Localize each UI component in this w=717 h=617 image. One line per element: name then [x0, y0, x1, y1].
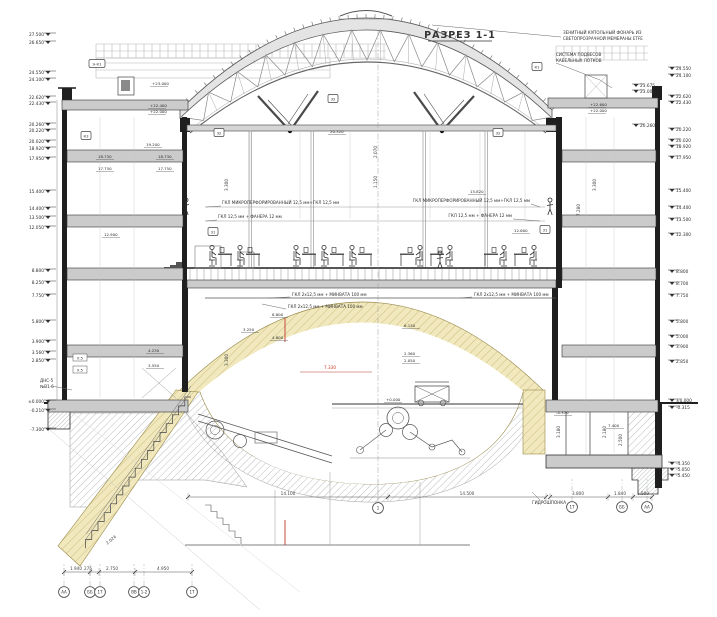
desk [514, 254, 528, 256]
elevation-flag [46, 320, 51, 323]
grid-bubble-label: ББ [87, 590, 93, 595]
elevation-flag [46, 33, 51, 36]
truss-vertical [237, 71, 244, 94]
truss-bottom-chord [190, 62, 546, 133]
person-seated-body [212, 250, 216, 266]
roof-deck-tick [303, 24, 304, 28]
truss-vertical [266, 55, 272, 81]
roof-deck-tick [294, 28, 295, 32]
person-seated-body [446, 250, 450, 266]
note-text-gkl-right-1: ГКЛ МИКРОПЕРФОРИРОВАННЫЙ 12,5 мм+ГКЛ 12,… [413, 198, 530, 203]
monitor [408, 248, 412, 253]
note-text-skylight: ЗЕНИТНЫЙ КУПОЛЬНЫЙ ФОНАРЬ ИЗ [563, 30, 642, 35]
elevation-flag [46, 351, 51, 354]
elevation-flag [670, 399, 675, 402]
person-seated-body [296, 250, 300, 266]
inner-wall [556, 117, 562, 288]
dimension-label: 14.100 [281, 491, 296, 496]
elevation-value: 20.260 [29, 122, 44, 128]
grid-bubble-label: 1Т [570, 505, 576, 510]
elevation-flag [670, 218, 675, 221]
grid-bubble-label: 1-2 [141, 590, 148, 595]
desk [400, 254, 414, 256]
elevation-flag [670, 67, 675, 70]
elevation-value: -7.300 [30, 427, 44, 433]
elevation-flag [670, 406, 675, 409]
floor-slab [67, 215, 183, 227]
elevation-value: 26.650 [29, 40, 44, 46]
interior-level: 3.250 [243, 327, 255, 332]
interior-level: +22.000 [590, 108, 607, 113]
truss-vertical [209, 92, 217, 111]
roof-deck-tick [543, 99, 546, 102]
desk [484, 254, 498, 256]
interior-level: 18.730 [98, 154, 112, 159]
note-leader-gidroshponka [532, 492, 540, 500]
elevation-flag [46, 359, 51, 362]
elevation-value: 24.100 [29, 77, 44, 83]
interior-level: 8.800 [272, 312, 284, 317]
drawing-title: РАЗРЕЗ 1-1 [424, 30, 496, 41]
roof-slab [62, 100, 188, 110]
basement-outer-wall [655, 403, 662, 488]
dimension-label-rotated: 1.150 [373, 176, 378, 188]
elevation-value: 12.050 [29, 225, 44, 231]
elevation-flag [46, 147, 51, 150]
elevation-value: 20.020 [29, 139, 44, 145]
basement-slab [546, 455, 662, 468]
interior-level: 12.900 [104, 232, 118, 237]
interior-level: 18.730 [158, 154, 172, 159]
inner-wall-lower [552, 288, 558, 412]
interior-level: +22.400 [150, 103, 167, 108]
detail-marker-label: 31 [543, 228, 548, 233]
dimension-label: 2.750 [106, 566, 118, 571]
elevation-value: 5.800 [32, 319, 45, 325]
roof-truss [177, 11, 556, 134]
elevation-flag [46, 340, 51, 343]
elevation-flag [46, 140, 51, 143]
truss-deck-band [180, 18, 552, 118]
person-head [238, 245, 242, 249]
elevation-flag [46, 123, 51, 126]
elevation-value: 14.400 [29, 206, 44, 212]
elevation-flag [670, 462, 675, 465]
elevation-flag [46, 216, 51, 219]
elevation-flag [670, 468, 675, 471]
dimension-label: 14.500 [460, 491, 475, 496]
dimension-label-rotated: 3.300 [592, 179, 597, 191]
dimension-label-rotated: 3.180 [556, 426, 561, 438]
roof-deck-tick [204, 83, 207, 86]
elevation-flag [670, 294, 675, 297]
desk [330, 254, 344, 256]
roof-deck-tick [339, 16, 340, 20]
hall-partition [195, 246, 221, 268]
hall-side-steps [164, 262, 182, 269]
elevation-flag [634, 90, 639, 93]
interior-level: 17.750 [158, 166, 172, 171]
desk [218, 254, 232, 256]
note-text-gkl-left-2: ГКЛ 12,5 мм + ФАНЕРА 12 мм [218, 214, 282, 219]
ground-slab [48, 400, 188, 412]
grid-bubble-label: АА [644, 505, 650, 510]
note-leader-gkl-right-1 [531, 204, 540, 207]
hall-floor-slab [187, 280, 556, 288]
roof-deck-tick [534, 90, 537, 93]
detail-marker-label: К1 [534, 65, 540, 70]
elevation-flag [670, 270, 675, 273]
elevation-flag [670, 206, 675, 209]
grid-bubble-label: 1Т [190, 590, 196, 595]
tag-label: У.5 [77, 356, 84, 361]
roof-deck-tick [419, 22, 420, 26]
detail-marker-label: 31 [211, 230, 216, 235]
elevation-flag [46, 269, 51, 272]
person-head [502, 245, 506, 249]
person-head [548, 198, 552, 202]
floor-slab [67, 268, 183, 280]
elevation-flag [670, 156, 675, 159]
detail-marker-label: Э-К1 [92, 62, 102, 67]
interior-level: +22.600 [590, 102, 607, 107]
roof-deck-tick [508, 68, 510, 71]
truss-vertical [463, 55, 466, 81]
interior-level: +0.000 [386, 397, 401, 402]
roof-deck-tick [330, 17, 331, 21]
v-support-left-web [268, 94, 308, 126]
drawing-sheet: 27.50026.65024.55024.10022.62022.43020.2… [0, 0, 717, 617]
elevation-value: 3.900 [32, 339, 45, 345]
truss-vertical [518, 92, 523, 111]
note-leader-gkl-right-2 [513, 219, 540, 221]
elevation-value: 13.500 [29, 215, 44, 221]
tag-label: У.5 [77, 368, 84, 373]
desk [246, 254, 260, 256]
shell-right-leg [523, 390, 545, 454]
people-figures [183, 198, 553, 268]
interior-level: 12.600 [514, 228, 528, 233]
note-text-gidroshponka: ГИДРОШПОНКА [532, 500, 566, 505]
elevation-flag [46, 102, 51, 105]
elevation-flag [670, 128, 675, 131]
dimension-label-rotated: 7.280 [576, 204, 581, 216]
roof-deck-tick [410, 19, 411, 23]
interior-level: 15.820 [470, 189, 484, 194]
elevation-flag [46, 207, 51, 210]
dimension-label: 1.500 [637, 491, 649, 496]
note-text-ceiling-right: ГКЛ 2x12,5 мм + МИНВАТА 100 мм [474, 292, 549, 297]
person-head [418, 245, 422, 249]
roof-deck-tick [499, 62, 501, 65]
detail-marker-label: 32 [496, 131, 501, 136]
roof-deck-tick [401, 17, 402, 21]
elevation-flag [670, 360, 675, 363]
elevation-flag [46, 428, 51, 431]
elevation-flag [46, 281, 51, 284]
floor-slabs [48, 100, 188, 412]
detail-marker-label: К3 [83, 134, 89, 139]
interior-level: 6.130 [404, 323, 416, 328]
note-leader-ceiling-left-2 [262, 304, 286, 309]
grid-bubble-label: ВВ [131, 590, 137, 595]
monitor [522, 248, 526, 253]
dimension-label-rotated: 2.180 [602, 426, 607, 438]
grid-bubble-label: ББ [619, 505, 625, 510]
person-standing-body [547, 202, 553, 215]
elevation-value: 24.550 [29, 70, 44, 76]
note-text-ceiling-left-2: ГКЛ 2x12,5 мм + МИНВАТА 100 мм [288, 304, 363, 309]
monitor [220, 248, 224, 253]
interior-level: 2.050 [404, 358, 416, 363]
elevation-value: 15.400 [29, 189, 44, 195]
note-text-gkl-right-2: ГКЛ 12,5 мм + ФАНЕРА 12 мм [448, 213, 512, 218]
small-tags: У.5У.5 [73, 354, 87, 373]
elevation-flag [670, 233, 675, 236]
interior-level: 7.400 [608, 423, 620, 428]
person-seated-body [324, 250, 328, 266]
person-head [294, 245, 298, 249]
elevation-value: 7.750 [32, 293, 45, 299]
floor-slab [562, 345, 656, 357]
roof-deck-tick [312, 22, 313, 26]
basement-stair [205, 505, 241, 544]
dimension-label-rotated: 2.024 [105, 534, 118, 546]
roof-deck-tick [490, 56, 492, 59]
truss-vertical [436, 42, 438, 70]
rooftop-box-window [121, 80, 130, 91]
roof-deck-tick [321, 19, 322, 23]
elevation-flag [670, 139, 675, 142]
elevation-flag [46, 226, 51, 229]
ceiling-hangers [250, 131, 525, 219]
roof-deck-tick [428, 24, 429, 28]
inner-wall-lower [182, 288, 188, 392]
note-text-dns: ДНС-5 [40, 378, 54, 383]
note-text-cable-trays: КАБЕЛЬНЫХ ЛОТКОВ [556, 58, 602, 63]
person-seated-body [500, 250, 504, 266]
dimension-label: 1.940 [70, 566, 82, 571]
elevation-value: ±0.000 [28, 399, 44, 405]
elevation-flag [670, 320, 675, 323]
outer-wall [62, 100, 67, 403]
truss-web [180, 30, 552, 120]
roof-deck-tick [393, 16, 394, 20]
grid-bubble-label: 1 [377, 506, 380, 511]
dimension-label: 1.840 [614, 491, 626, 496]
elevation-value: 8.250 [32, 280, 45, 286]
roof-deck-tick [231, 62, 233, 65]
interior-level: 20.320 [330, 129, 344, 134]
truss-vertical [294, 42, 298, 70]
roof-deck-tick [481, 50, 483, 53]
dimension-label-rotated: 3.300 [224, 354, 229, 366]
architectural-section-drawing: 27.50026.65024.55024.10022.62022.43020.2… [0, 0, 717, 617]
elevation-flag [670, 74, 675, 77]
raised-floor-pedestals [190, 269, 547, 280]
dimension-label-rotated: 3.300 [224, 179, 229, 191]
elevation-value: 18.920 [29, 146, 44, 152]
roof-deck-tick [267, 40, 269, 44]
elevation-flag [46, 190, 51, 193]
grid-bubble-label: 1Т [98, 590, 104, 595]
roof-deck-tick [195, 90, 198, 93]
interior-level: 3.550 [148, 363, 160, 368]
elevation-value: 22.620 [29, 95, 44, 101]
dimension-label: 275 [84, 566, 92, 571]
monitor [492, 248, 496, 253]
truss-lattice [180, 30, 552, 131]
elevation-flag [670, 145, 675, 148]
roof-deck-tick [285, 31, 287, 35]
interior-level: 4.230 [148, 348, 160, 353]
interior-level: 19.200 [146, 142, 160, 147]
note-text-dns: №В1-6 [40, 384, 54, 389]
interior-level: 17.750 [98, 166, 112, 171]
detail-marker-label: 32 [331, 97, 336, 102]
roof-deck-tick [525, 83, 528, 86]
person-seated-body [352, 250, 356, 266]
desk [302, 254, 316, 256]
note-text-gkl-left-1: ГКЛ МИКРОПЕРФОРИРОВАННЫЙ 12,5 мм+ГКЛ 12,… [222, 200, 339, 205]
roof-deck-tick [517, 75, 520, 78]
dimension-label-rotated: 2.500 [618, 434, 623, 446]
elevation-value: -0.210 [30, 408, 44, 414]
elevation-value: 3.560 [32, 350, 45, 356]
person-head [532, 245, 536, 249]
elevation-value: 20.220 [29, 128, 44, 134]
roof-deck-tick [258, 45, 260, 48]
roof-deck-tick [276, 35, 278, 39]
elevation-flag [634, 84, 639, 87]
person-head [448, 245, 452, 249]
truss-vertical [408, 34, 409, 64]
floor-slab [562, 268, 656, 280]
elevation-flag [670, 189, 675, 192]
person-head [322, 245, 326, 249]
elevation-value: 8.800 [32, 268, 45, 274]
elevation-flag [670, 282, 675, 285]
elevation-flag [670, 335, 675, 338]
elevation-flag [46, 129, 51, 132]
dimension-label: 3.800 [572, 491, 584, 496]
elevation-flag [46, 71, 51, 74]
roof-deck-tick [472, 45, 474, 48]
basement-stair-steps [205, 505, 241, 544]
elevation-flag [670, 95, 675, 98]
main-hall [187, 125, 556, 298]
elevation-value: 2.850 [32, 358, 45, 364]
stair-shaft-brace [142, 368, 176, 398]
elevation-flag [46, 294, 51, 297]
roof-deck-tick [249, 50, 251, 53]
elevation-flag [670, 474, 675, 477]
elevation-flag [634, 124, 639, 127]
note-text-ceiling-left-1: ГКЛ 2x12,5 мм + МИНВАТА 100 мм [292, 292, 367, 297]
elevation-marks-left: 27.50026.65024.55024.10022.62022.43020.2… [28, 32, 56, 433]
elevation-value: 22.430 [29, 101, 44, 107]
interior-level: +23.000 [152, 81, 169, 86]
person-seated-body [530, 250, 534, 266]
elevation-value: 17.950 [29, 156, 44, 162]
desk [358, 254, 372, 256]
person-head [350, 245, 354, 249]
elevation-value: 27.500 [29, 32, 44, 38]
elevation-flag [670, 101, 675, 104]
dimension-label: 4.950 [157, 566, 169, 571]
interior-level: 4.800 [272, 335, 284, 340]
person-standing-body [437, 255, 443, 268]
louver-band [96, 58, 330, 78]
elevation-flag [46, 96, 51, 99]
interior-level: 2.360 [404, 351, 416, 356]
grid-bubble-label: АА [61, 590, 67, 595]
note-text-skylight: СВЕТОПРОЗРАЧНОЙ МЕМБРАНЫ ETFE [563, 36, 643, 41]
detail-marker-label: 32 [217, 131, 222, 136]
elevation-flag [46, 41, 51, 44]
monitor [304, 248, 308, 253]
person-seated-body [416, 250, 420, 266]
elevation-flag [46, 157, 51, 160]
v-support-right-web [424, 94, 464, 126]
monitor [360, 248, 364, 253]
monitor [332, 248, 336, 253]
left-tower [48, 77, 188, 412]
note-text-cable-trays: СИСТЕМА ПОДВЕСОВ [556, 52, 601, 57]
interior-level: +22.000 [150, 109, 167, 114]
interior-level: -4.370 [556, 410, 569, 415]
dimension-label-rotated: 2.070 [373, 146, 378, 158]
red-dimension: 7.330 [324, 365, 336, 370]
elevation-flag [46, 78, 51, 81]
elevation-flag [670, 345, 675, 348]
floor-slab [562, 150, 656, 162]
